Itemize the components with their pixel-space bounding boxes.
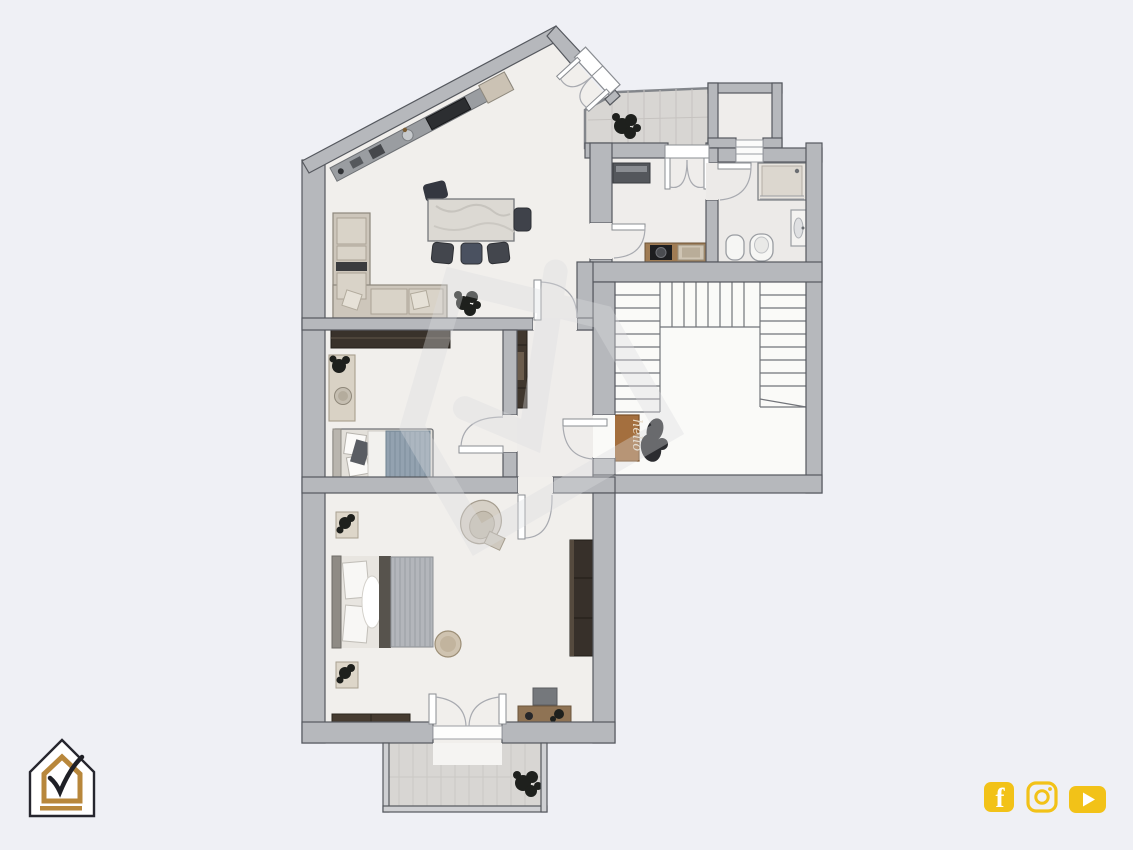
facebook-icon[interactable]: f (984, 782, 1014, 813)
steps (736, 140, 763, 162)
dining-chair (431, 242, 454, 264)
toilet (750, 234, 773, 261)
floor-plan-page: hello (0, 0, 1133, 850)
shower (758, 163, 806, 200)
wall-tv (533, 688, 557, 705)
dining-chair (461, 243, 482, 264)
sofa-side-table (336, 262, 367, 271)
svg-text:f: f (996, 783, 1006, 813)
master-wall-top (302, 477, 518, 493)
master-wall-right (593, 493, 615, 743)
dining-chair (487, 242, 510, 264)
house-check-logo-icon (30, 740, 94, 816)
stairwell-wall-bottom (593, 475, 822, 493)
youtube-icon[interactable] (1069, 786, 1106, 813)
pouf (435, 631, 461, 657)
living-wall-bottom (302, 318, 533, 330)
master-wardrobe (570, 540, 593, 656)
instagram-icon[interactable] (1028, 783, 1056, 811)
social-icons: f (984, 782, 1106, 813)
bathroom-sink (791, 210, 806, 246)
laundry-wall-left (590, 143, 612, 223)
balcony-rail-left (383, 743, 389, 812)
nightstand (336, 512, 358, 538)
double-bed (332, 556, 433, 648)
outer-wall-right (806, 143, 822, 493)
nightstand (336, 662, 358, 688)
balcony-rail-bottom (383, 806, 547, 812)
storage-wall (708, 83, 782, 93)
laundry-counter (645, 243, 712, 262)
stairwell-wall-top (590, 262, 822, 282)
dining-chair (514, 208, 531, 231)
bidet (726, 235, 744, 260)
outer-wall-bottom (302, 722, 433, 743)
vanity-desk (329, 355, 355, 421)
storage-room-floor (714, 91, 776, 143)
bedroom-hall-wall (503, 330, 517, 415)
outer-wall-left (302, 160, 325, 743)
floor-plan-graphic: hello (0, 0, 1133, 850)
balcony-rail-right (541, 743, 547, 812)
